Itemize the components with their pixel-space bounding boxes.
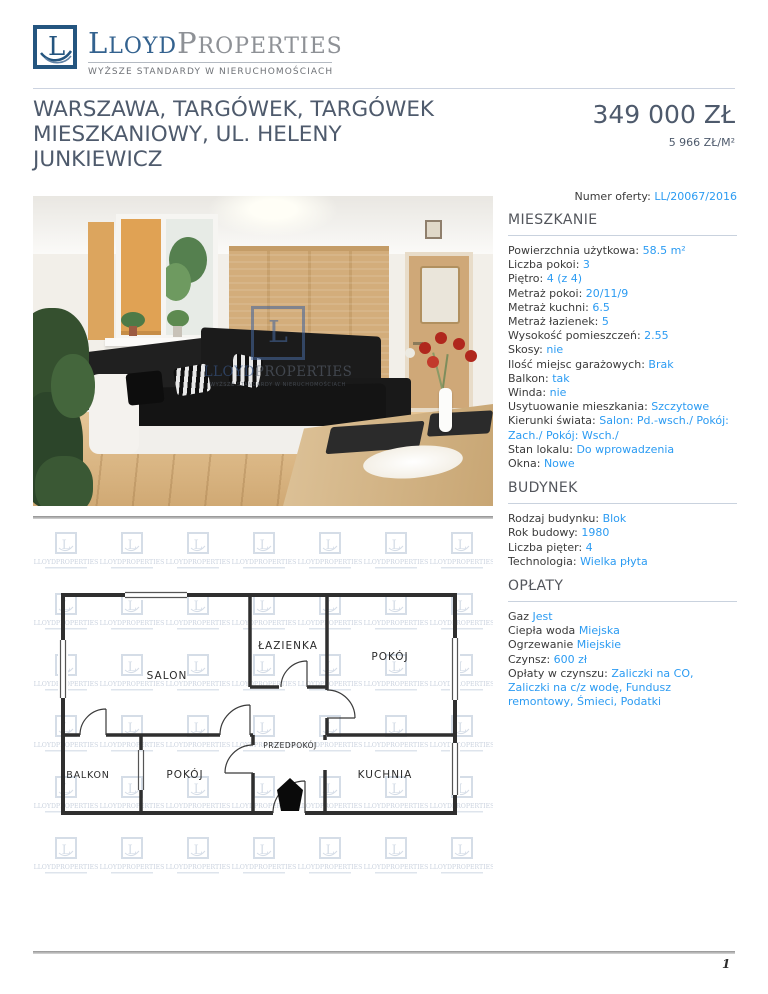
room-label-balkon: BALKON: [66, 770, 109, 781]
detail-value: 2.55: [644, 329, 669, 342]
detail-label: Metraż łazienek:: [508, 315, 598, 328]
detail-row: Piętro: 4 (z 4): [508, 272, 737, 286]
section-title-mieszkanie: MIESZKANIE: [508, 212, 737, 236]
detail-value: 4: [586, 541, 593, 554]
detail-row: Skosy: nie: [508, 343, 737, 357]
photo-vase: [439, 388, 452, 432]
detail-value: Wielka płyta: [580, 555, 648, 568]
brand-rest-2: ROPERTIES: [198, 34, 343, 59]
photo-window-bar: [161, 219, 166, 335]
detail-value: Blok: [603, 512, 627, 525]
detail-value: Nowe: [544, 457, 575, 470]
photo-houseplant: [51, 354, 95, 418]
listing-title: WARSZAWA, TARGÓWEK, TARGÓWEK MIESZKANIOW…: [33, 97, 465, 172]
detail-label: Liczba pokoi:: [508, 258, 579, 271]
offer-number-line: Numer oferty: LL/20067/2016: [508, 190, 737, 203]
listing-page: L LLOYDPROPERTIES WYŻSZE STANDARDY W NIE…: [0, 0, 768, 994]
lloyd-logo-mark-icon: L: [33, 25, 77, 71]
price: 349 000 ZŁ: [592, 100, 735, 129]
detail-label: Liczba pięter:: [508, 541, 582, 554]
detail-row: Liczba pięter: 4: [508, 541, 737, 555]
detail-value: nie: [550, 386, 567, 399]
photo-red-flower: [435, 332, 447, 344]
brand-name: LLOYDPROPERTIES: [88, 26, 348, 60]
brand-tagline: WYŻSZE STANDARDY W NIERUCHOMOŚCIACH: [88, 67, 348, 77]
detail-row: Rodzaj budynku: Blok: [508, 512, 737, 526]
room-label-przedpokoj: PRZEDPOKÓJ: [263, 741, 316, 750]
page-number: 1: [722, 957, 730, 971]
detail-label: Ciepła woda: [508, 624, 575, 637]
detail-row: Metraż łazienek: 5: [508, 315, 737, 329]
detail-value: 5: [602, 315, 609, 328]
detail-value: Brak: [648, 358, 673, 371]
detail-row: Liczba pokoi: 3: [508, 258, 737, 272]
floor-plan-svg: L LLOYDPROPERTIES: [33, 528, 493, 896]
photo-cushion: [125, 370, 164, 406]
detail-label: Rok budowy:: [508, 526, 578, 539]
detail-value: 6.5: [592, 301, 610, 314]
room-label-salon: SALON: [147, 670, 188, 682]
detail-row: Metraż kuchni: 6.5: [508, 301, 737, 315]
detail-label: Stan lokalu:: [508, 443, 573, 456]
brand-logo-text: LLOYDPROPERTIES WYŻSZE STANDARDY W NIERU…: [88, 26, 348, 77]
detail-value: 4 (z 4): [547, 272, 582, 285]
photo-orange-wall: [88, 222, 114, 340]
detail-label: Ilość miejsc garażowych:: [508, 358, 645, 371]
brand-initial-1: L: [88, 26, 108, 60]
detail-row: Gaz Jest: [508, 610, 737, 624]
detail-row: Stan lokalu: Do wprowadzenia: [508, 443, 737, 457]
detail-label: Skosy:: [508, 343, 543, 356]
offer-number-label: Numer oferty:: [575, 190, 651, 203]
detail-value: 3: [583, 258, 590, 271]
photo-wall-picture: [425, 220, 442, 239]
brand-rest-1: LOYD: [108, 34, 177, 59]
offer-number-value: LL/20067/2016: [654, 190, 737, 203]
photo-sill-plant: [167, 310, 189, 327]
detail-value: 1980: [581, 526, 609, 539]
logo-divider: [88, 62, 332, 63]
detail-row: Ciepła woda Miejska: [508, 624, 737, 638]
price-per-m2: 5 966 ZŁ/M²: [592, 136, 735, 149]
detail-row: Rok budowy: 1980: [508, 526, 737, 540]
floorplan-watermark-pattern: [33, 528, 493, 896]
floor-plan: L LLOYDPROPERTIES: [33, 528, 493, 896]
detail-row: Kierunki świata: Salon: Pd.-wsch./ Pokój…: [508, 414, 737, 442]
section-rows-mieszkanie: Powierzchnia użytkowa: 58.5 m²Liczba pok…: [508, 244, 737, 471]
section-rows-budynek: Rodzaj budynku: BlokRok budowy: 1980Licz…: [508, 512, 737, 569]
detail-label: Ogrzewanie: [508, 638, 573, 651]
photo-red-flower: [419, 342, 431, 354]
detail-label: Usytuowanie mieszkania:: [508, 400, 648, 413]
room-label-pokoj-bottom: POKÓJ: [166, 768, 203, 781]
section-title-budynek: BUDYNEK: [508, 480, 737, 504]
detail-label: Okna:: [508, 457, 540, 470]
detail-label: Piętro:: [508, 272, 543, 285]
detail-row: Opłaty w czynszu: Zaliczki na CO, Zalicz…: [508, 667, 737, 710]
photo-placemat: [427, 410, 493, 436]
brand-logo-icon: L: [33, 25, 77, 71]
photo-watermark: L LLOYDPROPERTIES WYŻSZE STANDARDY W NIE…: [193, 306, 363, 388]
details-column: Numer oferty: LL/20067/2016 MIESZKANIE P…: [508, 190, 737, 711]
room-label-pokoj-top: POKÓJ: [371, 650, 408, 663]
watermark-letter: L: [268, 315, 288, 350]
brand-initial-2: P: [177, 26, 198, 60]
detail-label: Wysokość pomieszczeń:: [508, 329, 641, 342]
price-block: 349 000 ZŁ 5 966 ZŁ/M²: [592, 100, 735, 149]
detail-label: Rodzaj budynku:: [508, 512, 599, 525]
photo-ceiling-lamp: [208, 196, 338, 237]
photo-houseplant: [35, 456, 93, 506]
detail-label: Metraż pokoi:: [508, 287, 582, 300]
photo-plant-pot: [129, 326, 137, 336]
section-title-oplaty: OPŁATY: [508, 578, 737, 602]
detail-value: Miejska: [579, 624, 620, 637]
detail-row: Balkon: tak: [508, 372, 737, 386]
photo-red-flower: [427, 356, 439, 368]
detail-row: Powierzchnia użytkowa: 58.5 m²: [508, 244, 737, 258]
detail-value: 58.5 m²: [643, 244, 686, 257]
detail-value: nie: [546, 343, 563, 356]
detail-row: Metraż pokoi: 20/11/9: [508, 287, 737, 301]
photo-door-glass: [420, 266, 460, 324]
watermark-logo-icon: L: [251, 306, 305, 360]
watermark-tagline: WYŻSZE STANDARDY W NIERUCHOMOŚCIACH: [193, 382, 363, 388]
room-label-kuchnia: KUCHNIA: [358, 769, 413, 781]
detail-label: Powierzchnia użytkowa:: [508, 244, 639, 257]
detail-row: Wysokość pomieszczeń: 2.55: [508, 329, 737, 343]
section-rows-oplaty: Gaz JestCiepła woda MiejskaOgrzewanie Mi…: [508, 610, 737, 709]
detail-row: Ogrzewanie Miejskie: [508, 638, 737, 652]
detail-row: Ilość miejsc garażowych: Brak: [508, 358, 737, 372]
detail-label: Metraż kuchni:: [508, 301, 589, 314]
room-label-lazienka: ŁAZIENKA: [257, 640, 318, 652]
photo-separator: [33, 516, 493, 519]
detail-row: Winda: nie: [508, 386, 737, 400]
detail-value: Do wprowadzenia: [576, 443, 674, 456]
detail-row: Czynsz: 600 zł: [508, 653, 737, 667]
detail-row: Technologia: Wielka płyta: [508, 555, 737, 569]
detail-label: Winda:: [508, 386, 546, 399]
detail-value: 600 zł: [554, 653, 587, 666]
detail-row: Usytuowanie mieszkania: Szczytowe: [508, 400, 737, 414]
watermark-name: LLOYDPROPERTIES: [193, 364, 363, 380]
detail-value: Miejskie: [577, 638, 621, 651]
photo-white-flower: [405, 348, 415, 358]
watermark-name-1: LLOYD: [204, 364, 255, 380]
detail-value: Szczytowe: [651, 400, 709, 413]
detail-label: Kierunki świata:: [508, 414, 596, 427]
detail-row: Okna: Nowe: [508, 457, 737, 471]
detail-label: Czynsz:: [508, 653, 550, 666]
detail-label: Gaz: [508, 610, 529, 623]
property-photo: L LLOYDPROPERTIES WYŻSZE STANDARDY W NIE…: [33, 196, 493, 506]
detail-value: Jest: [533, 610, 553, 623]
detail-value: tak: [552, 372, 569, 385]
detail-label: Opłaty w czynszu:: [508, 667, 608, 680]
detail-label: Balkon:: [508, 372, 549, 385]
photo-red-flower: [465, 350, 477, 362]
photo-red-flower: [453, 338, 465, 350]
watermark-name-2: PROPERTIES: [255, 364, 353, 380]
photo-plant-pot: [173, 326, 182, 337]
header-rule: [33, 88, 735, 89]
footer-rule: [33, 951, 735, 954]
detail-value: 20/11/9: [586, 287, 628, 300]
detail-label: Technologia:: [508, 555, 577, 568]
